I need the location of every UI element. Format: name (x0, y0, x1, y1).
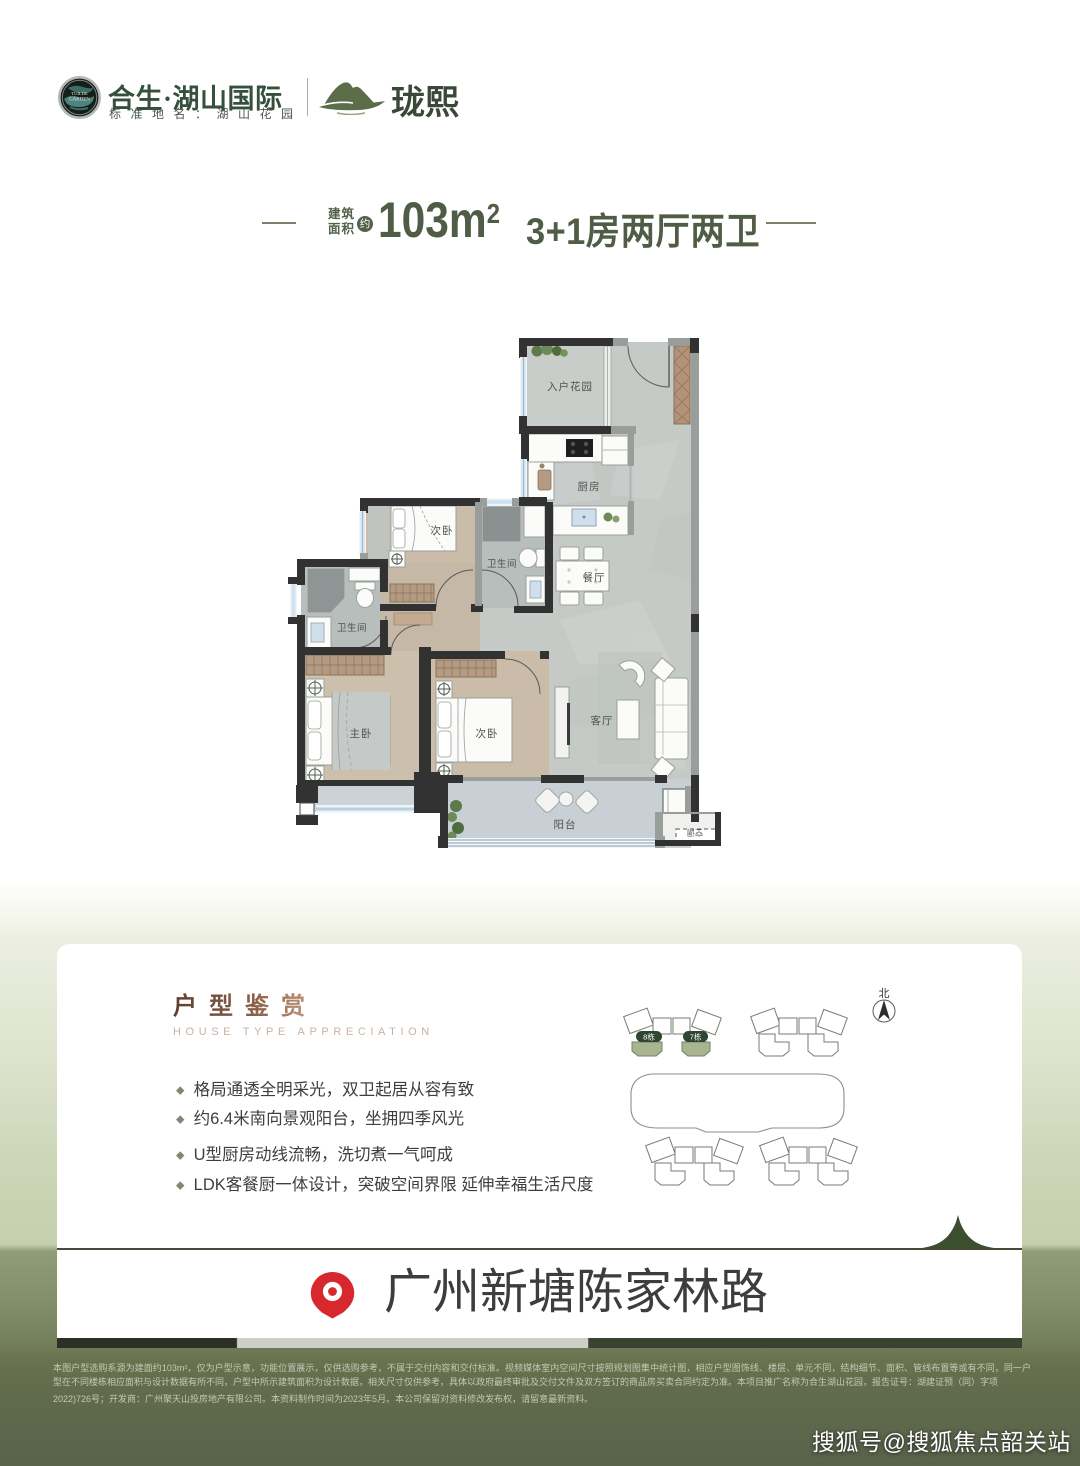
svg-text:7栋: 7栋 (690, 1032, 702, 1042)
svg-text:TUILDE: TUILDE (71, 91, 88, 96)
svg-text:北: 北 (879, 987, 890, 1000)
svg-text:次卧: 次卧 (476, 727, 499, 740)
svg-text:8栋: 8栋 (643, 1032, 655, 1042)
svg-text:卫生间: 卫生间 (337, 622, 367, 634)
svg-text:次卧: 次卧 (431, 524, 454, 537)
svg-text:客厅: 客厅 (591, 714, 614, 727)
svg-text:厨房: 厨房 (578, 480, 601, 493)
svg-text:卫生间: 卫生间 (487, 558, 517, 570)
svg-text:阳台: 阳台 (554, 818, 577, 831)
svg-text:GARDEN: GARDEN (69, 98, 90, 103)
svg-text:空调: 空调 (687, 828, 703, 838)
svg-text:餐厅: 餐厅 (583, 571, 606, 584)
svg-text:主卧: 主卧 (350, 727, 373, 740)
svg-text:入户花园: 入户花园 (547, 380, 593, 393)
